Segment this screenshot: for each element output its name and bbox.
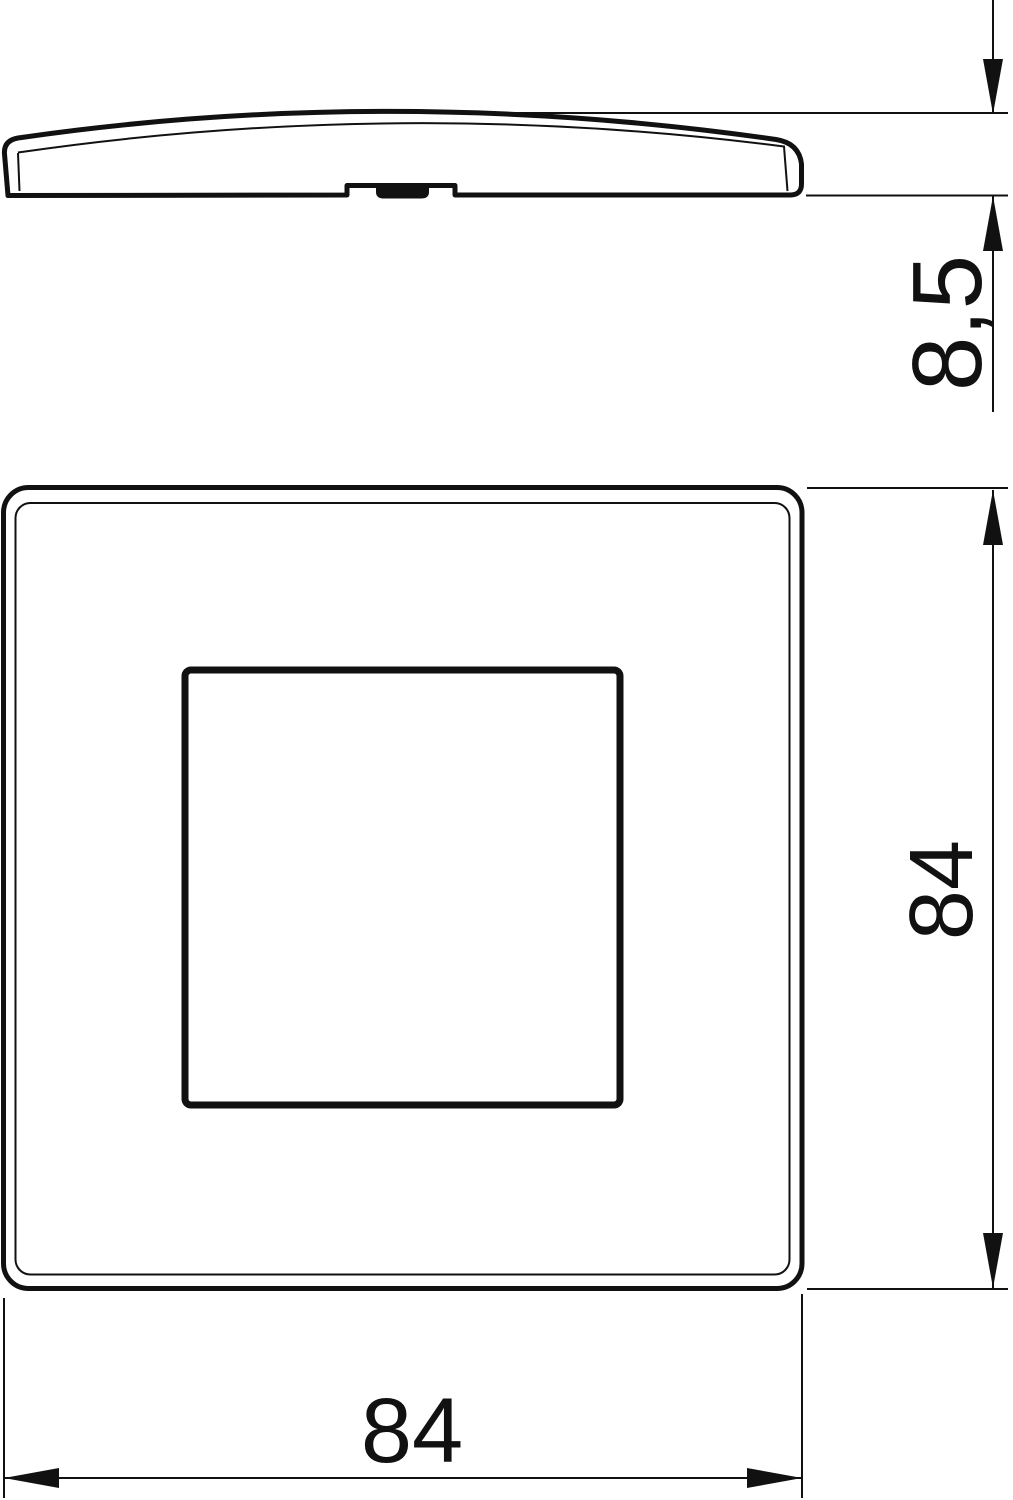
dim-arrow-down-icon: [983, 59, 1003, 114]
dim-arrow-up-icon: [983, 490, 1003, 545]
dim-arrow-up-icon: [983, 196, 1003, 251]
dim-width: 84: [4, 1294, 802, 1498]
side-view-latch-tab: [376, 184, 429, 199]
dim-arrow-left-icon: [4, 1468, 59, 1488]
technical-drawing-canvas: 8,5 84 84: [0, 0, 1013, 1500]
front-view-outline: [4, 488, 803, 1289]
dimension-height-label: 84: [892, 840, 992, 940]
front-view: [4, 488, 803, 1289]
dim-thickness: 8,5: [460, 0, 1008, 412]
side-view: [4, 111, 801, 198]
dim-arrow-down-icon: [983, 1233, 1003, 1288]
dim-arrow-right-icon: [747, 1468, 802, 1488]
dim-height: 84: [807, 488, 1008, 1289]
dimension-thickness-label: 8,5: [892, 255, 1002, 391]
dimension-width-label: 84: [361, 1380, 463, 1482]
